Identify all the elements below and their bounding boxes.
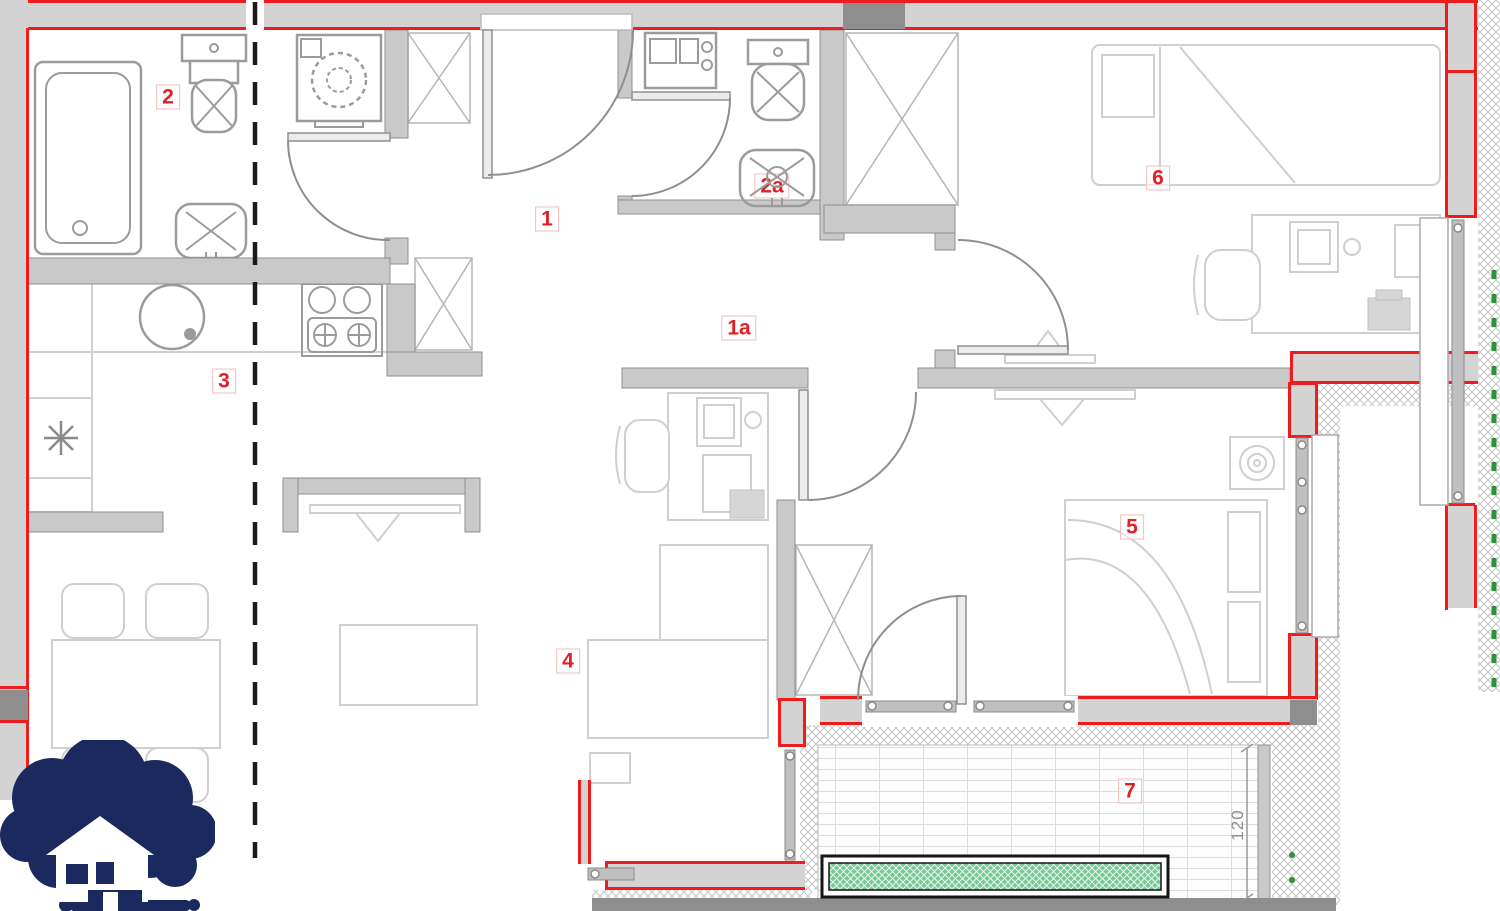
window-icon xyxy=(1296,435,1338,637)
office-chair-icon xyxy=(1194,250,1260,320)
window-icon xyxy=(785,750,795,860)
terrace-depth-dimension: 120 xyxy=(1228,809,1248,840)
entrance-door-icon xyxy=(483,30,633,178)
washbasin-icon xyxy=(176,204,246,260)
cabinet-icon xyxy=(645,33,716,88)
room-label-kitchen: 3 xyxy=(212,369,236,394)
office-chair-icon xyxy=(616,420,669,492)
floor-plan: 1 1a 2 2a 3 4 5 6 7 120 ANGAŽMAN NEKRETN… xyxy=(0,0,1500,911)
room-label-bathroom: 2 xyxy=(156,85,180,110)
room-label-corridor: 1a xyxy=(721,316,756,341)
coffee-table-icon xyxy=(340,625,477,705)
toilet-icon xyxy=(748,40,808,120)
bedroom1-furniture xyxy=(1005,45,1440,363)
room-label-hall: 1 xyxy=(535,207,559,232)
wardrobe-icon xyxy=(408,33,470,123)
room-label-bedroom2: 5 xyxy=(1120,515,1144,540)
agency-logo: ANGAŽMAN NEKRETNINE xyxy=(0,740,640,911)
wardrobe-icon xyxy=(846,33,958,205)
bedroom2-door-icon xyxy=(799,390,916,500)
sofa-icon xyxy=(588,545,768,738)
bathroom-door-icon xyxy=(288,133,390,240)
planter-icon xyxy=(822,856,1168,897)
room-label-living: 4 xyxy=(556,649,580,674)
fridge-icon xyxy=(44,421,78,455)
desk-icon xyxy=(1252,215,1440,333)
bathtub-icon xyxy=(35,62,141,254)
stove-icon xyxy=(302,284,382,356)
tv-icon xyxy=(995,390,1135,425)
washing-machine-icon xyxy=(297,35,381,127)
room-label-bedroom1: 6 xyxy=(1146,166,1170,191)
toilet-room-fixtures xyxy=(645,33,808,120)
room-label-terrace: 7 xyxy=(1118,779,1142,804)
window-icon xyxy=(1420,218,1464,505)
toilet-icon xyxy=(182,35,246,132)
tv-icon xyxy=(310,505,460,541)
wardrobe-icon xyxy=(796,545,872,695)
double-bed-icon xyxy=(1065,500,1267,696)
terrace-door-icon xyxy=(858,596,966,704)
toilet-door-icon xyxy=(632,92,730,196)
bedroom2-furniture xyxy=(995,390,1284,696)
bedside-table-icon xyxy=(1230,437,1284,489)
bathroom-fixtures xyxy=(35,35,381,260)
bed-icon xyxy=(1092,45,1440,185)
printer-icon xyxy=(730,490,764,518)
room-label-toilet: 2a xyxy=(754,174,789,199)
entrance-threshold xyxy=(481,14,632,30)
kitchen-sink-icon xyxy=(140,285,204,349)
shaft-icon xyxy=(415,258,472,350)
